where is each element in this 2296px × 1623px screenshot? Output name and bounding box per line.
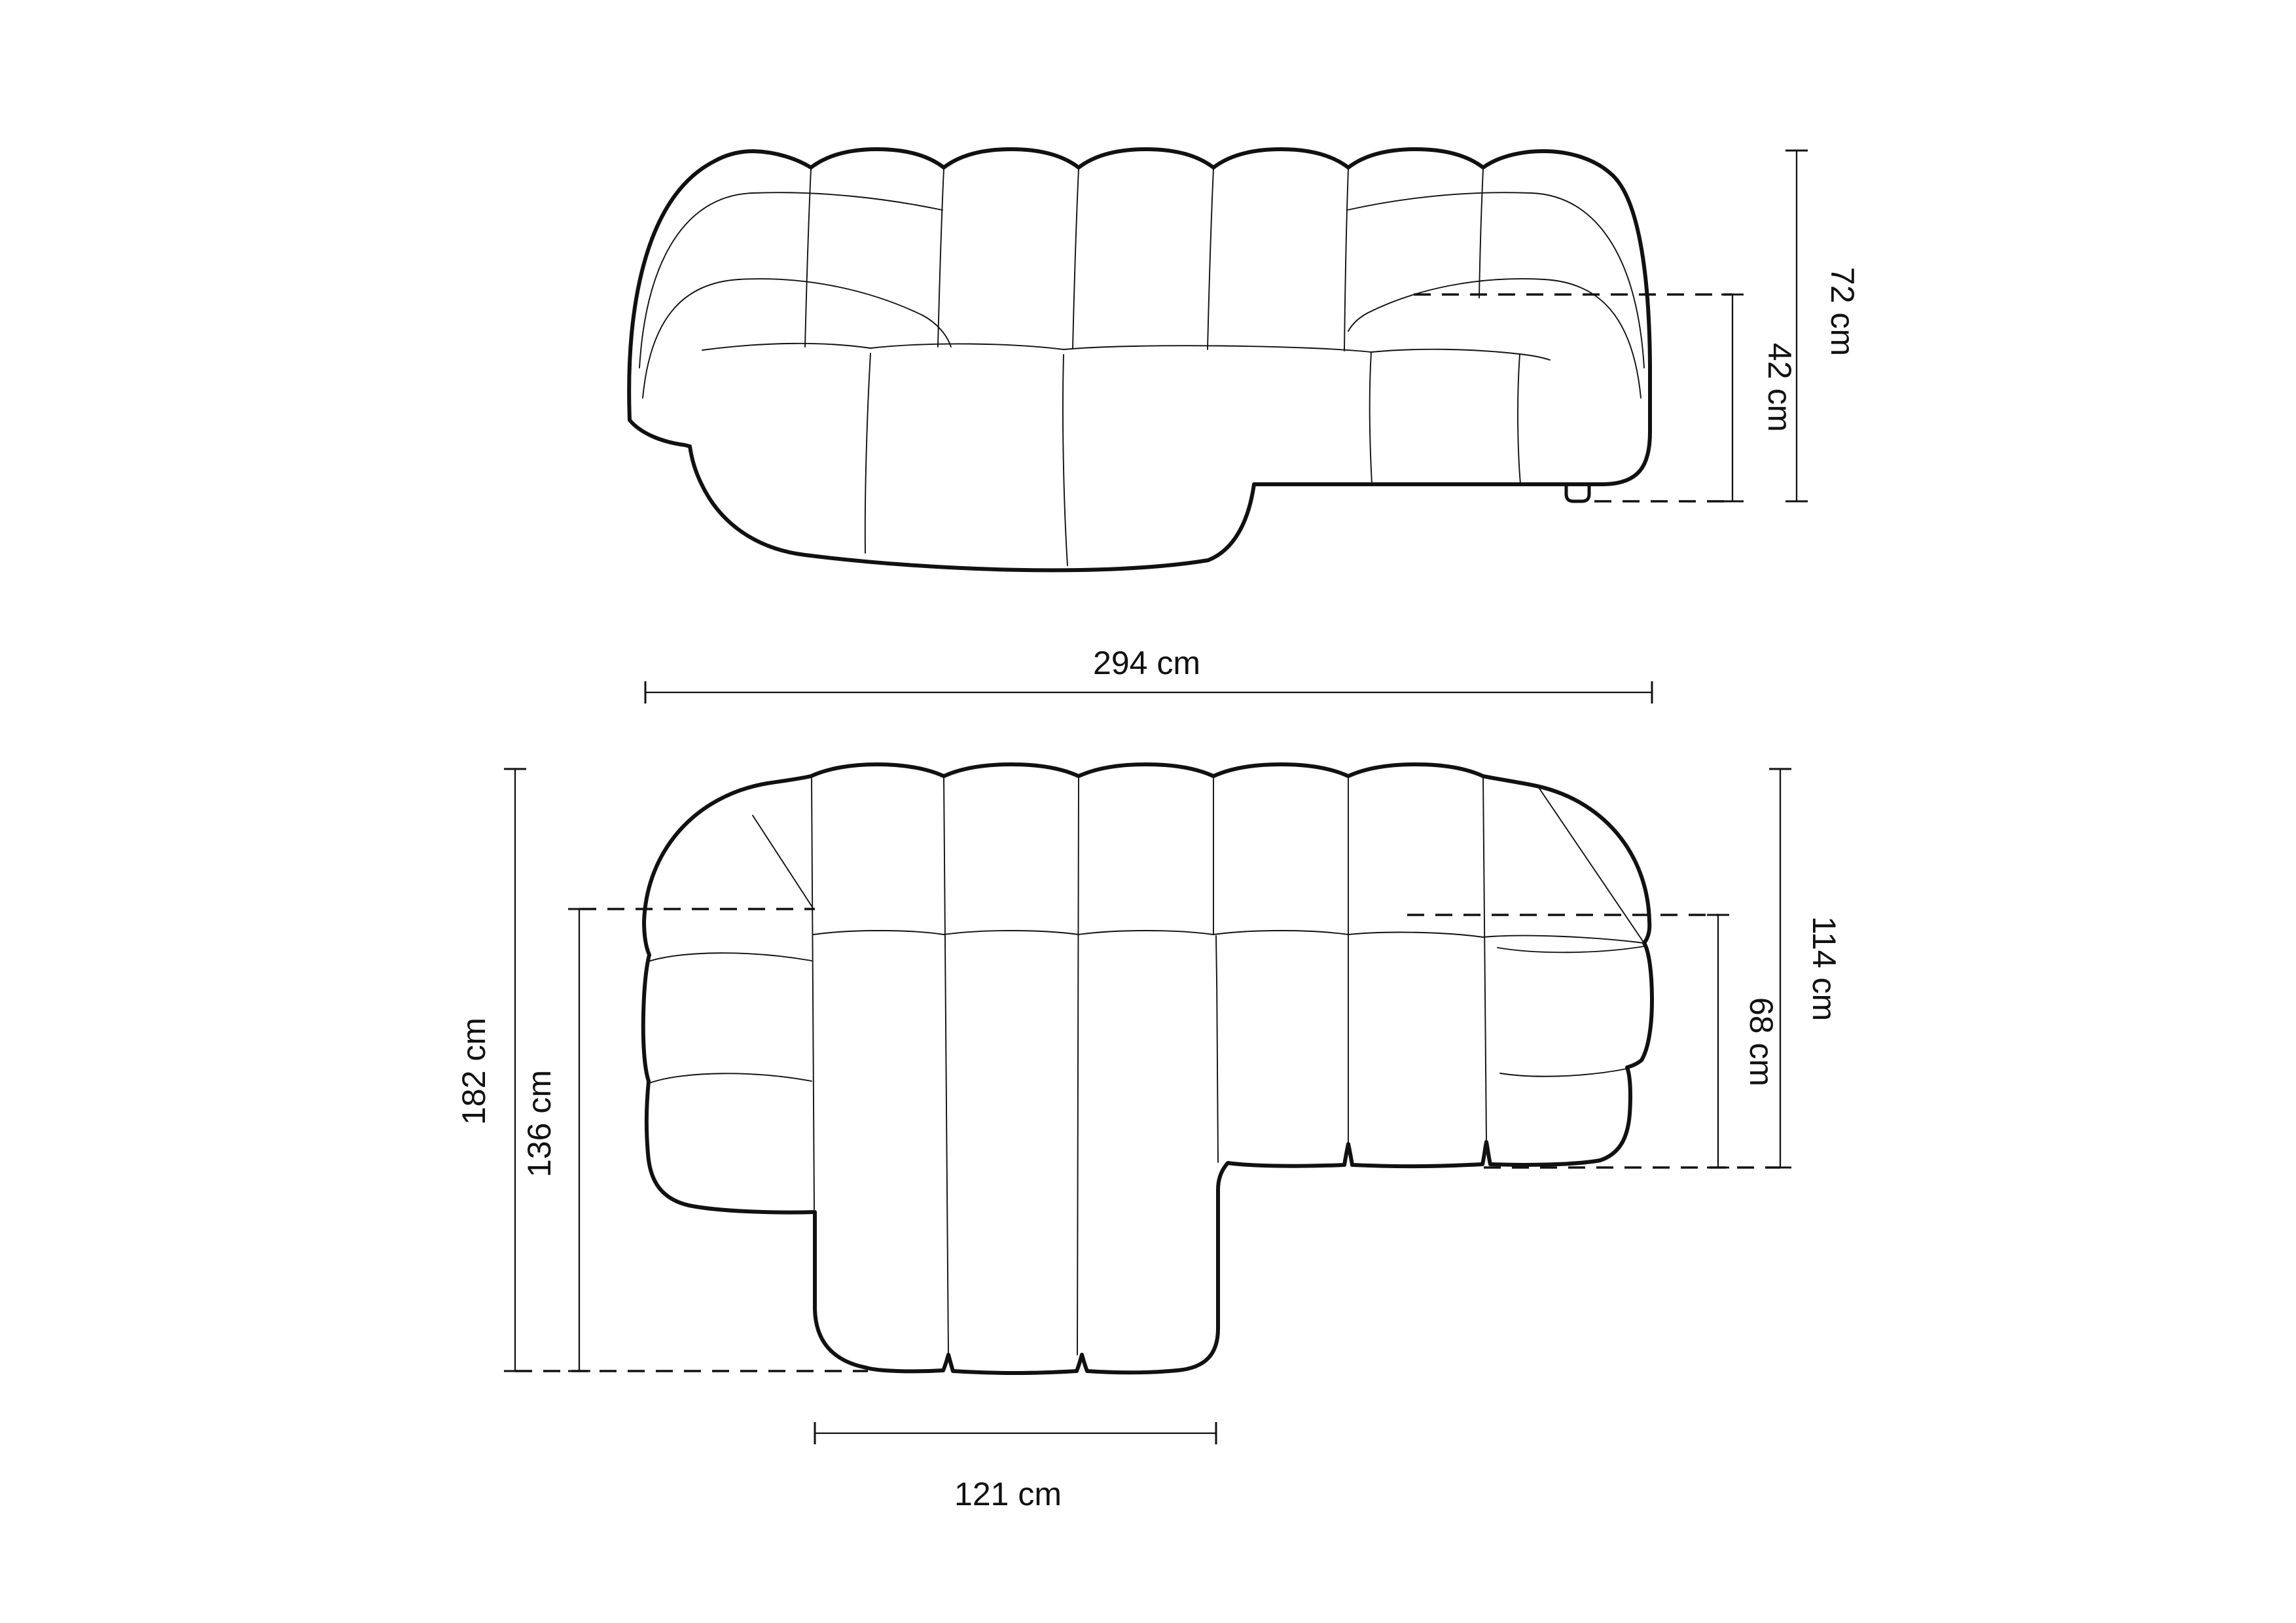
left-corner-diagonal-seam <box>753 815 814 909</box>
dimension-chaise-depth: 136 cm <box>521 909 590 1371</box>
dimension-seat-depth: 68 cm <box>1707 915 1780 1168</box>
top-plan-view: 182 cm 136 cm 68 cm 114 cm 1 <box>456 764 1842 1512</box>
sofa-plan-outline <box>643 764 1652 1373</box>
dimension-seat-height: 42 cm <box>1721 294 1798 501</box>
right-armrest-bubble-seam <box>1498 946 1644 952</box>
dimension-overall-depth: 182 cm <box>456 769 526 1371</box>
dimension-body-depth: 114 cm <box>1769 769 1842 1168</box>
dimension-label-seat-depth: 68 cm <box>1743 997 1780 1086</box>
right-armrest-bubble-seam <box>1500 1069 1627 1077</box>
plan-channel-divider <box>1483 776 1486 1140</box>
plan-channel-divider <box>944 776 948 1355</box>
dimension-label-body-depth: 114 cm <box>1806 916 1842 1021</box>
sofa-dimension-diagram: 42 cm 72 cm 294 cm <box>0 0 2296 1623</box>
seat-channel-divider <box>1370 352 1372 484</box>
front-elevation-view: 42 cm 72 cm <box>629 149 1861 570</box>
dimension-overall-height: 72 cm <box>1785 151 1861 501</box>
dimension-label-seat-height: 42 cm <box>1761 343 1798 432</box>
dimension-label-chaise-depth: 136 cm <box>521 1070 558 1177</box>
dimension-label-overall-height: 72 cm <box>1824 267 1861 356</box>
left-armrest-bubble-seam <box>649 1073 812 1083</box>
backrest-front-seam <box>814 931 1644 943</box>
dimension-chaise-width: 121 cm <box>815 1422 1216 1512</box>
backrest-channel-divider <box>938 169 944 347</box>
backrest-channel-divider <box>1344 169 1348 351</box>
backrest-channel-divider <box>1479 169 1483 298</box>
chaise-right-edge-seam <box>1216 936 1218 1162</box>
left-armrest-layer-line-2 <box>643 279 951 398</box>
seat-channel-divider <box>1518 354 1520 484</box>
front-right-foot <box>1566 486 1589 501</box>
sofa-front-outline <box>629 149 1650 570</box>
dimension-label-overall-depth: 182 cm <box>456 1018 492 1125</box>
chaise-channel-divider <box>1063 355 1067 565</box>
backrest-channel-divider <box>1073 169 1079 348</box>
dimension-label-chaise-width: 121 cm <box>954 1476 1062 1512</box>
seat-cushion-seam <box>702 344 1550 360</box>
backrest-channel-divider <box>805 169 811 347</box>
dimension-label-overall-width: 294 cm <box>1093 645 1200 681</box>
dimension-overall-width: 294 cm <box>645 645 1652 704</box>
chaise-channel-divider <box>865 353 870 553</box>
backrest-channel-divider <box>1208 169 1213 349</box>
plan-channel-divider <box>1077 776 1079 1355</box>
right-armrest-layer-line-2 <box>1348 279 1641 398</box>
plan-channel-divider <box>812 777 814 1209</box>
left-armrest-bubble-seam <box>647 953 812 962</box>
